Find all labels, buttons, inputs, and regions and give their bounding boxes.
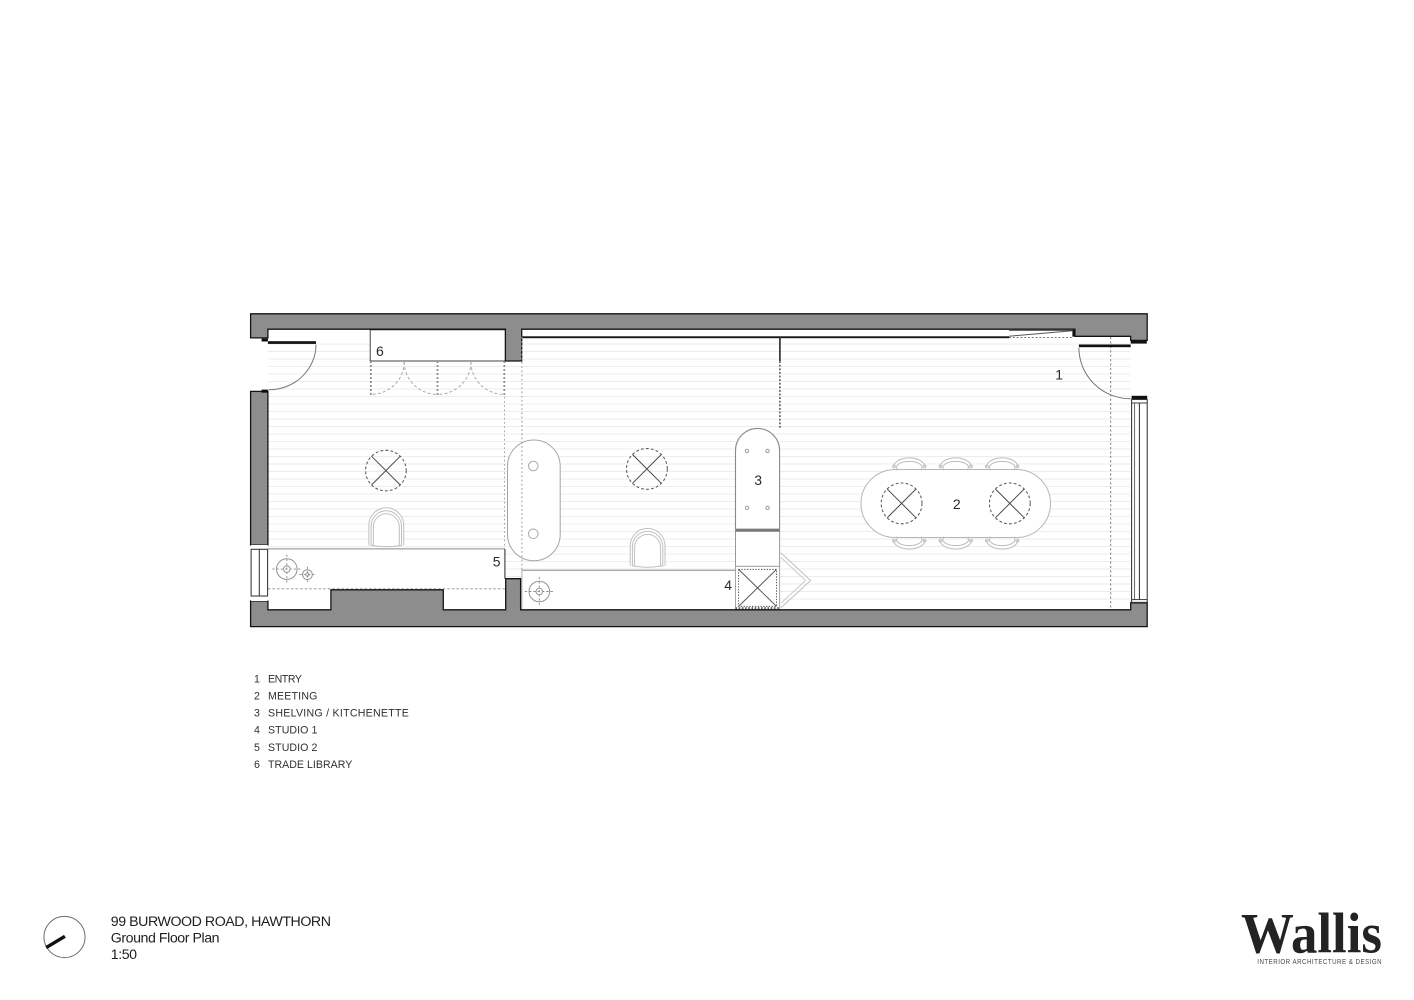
svg-text:STUDIO 2: STUDIO 2 <box>268 742 317 754</box>
svg-text:4: 4 <box>254 725 260 737</box>
svg-text:MEETING: MEETING <box>268 690 317 702</box>
svg-text:1: 1 <box>254 673 260 685</box>
svg-text:1: 1 <box>1055 367 1063 383</box>
svg-text:5: 5 <box>254 742 260 754</box>
svg-text:99 BURWOOD ROAD, HAWTHORN: 99 BURWOOD ROAD, HAWTHORN <box>111 914 331 930</box>
svg-text:STUDIO 1: STUDIO 1 <box>268 725 317 737</box>
svg-text:2: 2 <box>254 690 260 702</box>
svg-text:ENTRY: ENTRY <box>268 673 302 685</box>
svg-text:6: 6 <box>254 759 260 771</box>
svg-text:1:50: 1:50 <box>111 947 137 963</box>
svg-text:6: 6 <box>376 343 384 359</box>
svg-text:TRADE LIBRARY: TRADE LIBRARY <box>268 759 352 771</box>
svg-text:SHELVING / KITCHENETTE: SHELVING / KITCHENETTE <box>268 708 409 720</box>
svg-text:3: 3 <box>254 708 260 720</box>
svg-text:2: 2 <box>953 496 961 512</box>
svg-text:4: 4 <box>724 577 732 593</box>
svg-text:INTERIOR ARCHITECTURE & DESIGN: INTERIOR ARCHITECTURE & DESIGN <box>1257 957 1382 966</box>
svg-text:5: 5 <box>493 554 501 570</box>
svg-text:Ground Floor Plan: Ground Floor Plan <box>111 930 219 946</box>
svg-text:3: 3 <box>754 472 762 488</box>
